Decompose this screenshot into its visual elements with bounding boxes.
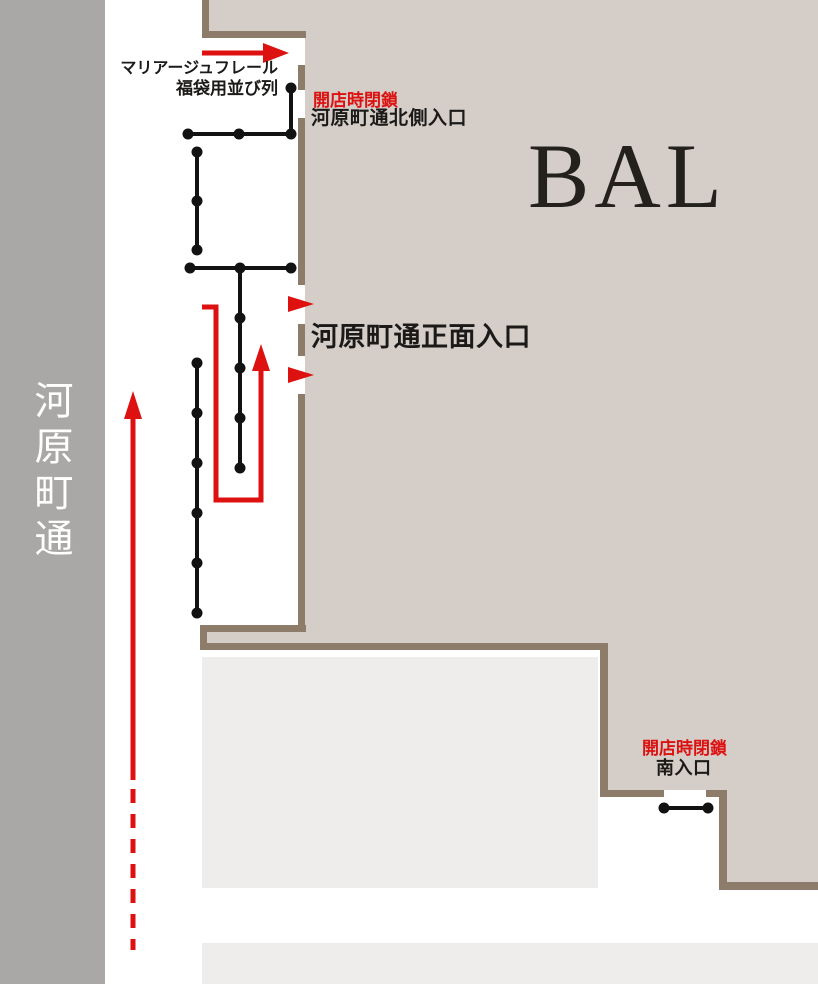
fukubukuro-queue-label: マリアージュフレール 福袋用並び列 — [120, 59, 278, 99]
south-entrance-label: 南入口 — [656, 758, 712, 779]
map-canvas: 河原町通 — [0, 0, 818, 984]
main-entrance-label: 河原町通正面入口 — [311, 322, 531, 353]
queue-line-main — [185, 263, 297, 474]
south-entrance-status: 開店時閉鎖 — [642, 734, 727, 759]
queue-line-south — [659, 803, 714, 814]
queue-line-left — [192, 358, 203, 619]
flow-arrow-street-icon — [124, 391, 142, 780]
north-entrance-label: 河原町通北側入口 — [311, 108, 467, 130]
entrance-arrow-lower-icon — [288, 367, 314, 383]
queue-label-line1: マリアージュフレール — [120, 59, 278, 79]
queue-line-upper-mid — [192, 147, 203, 256]
building-title: BAL — [528, 130, 727, 222]
entrance-arrow-upper-icon — [288, 296, 314, 312]
queue-label-line2: 福袋用並び列 — [120, 79, 278, 99]
